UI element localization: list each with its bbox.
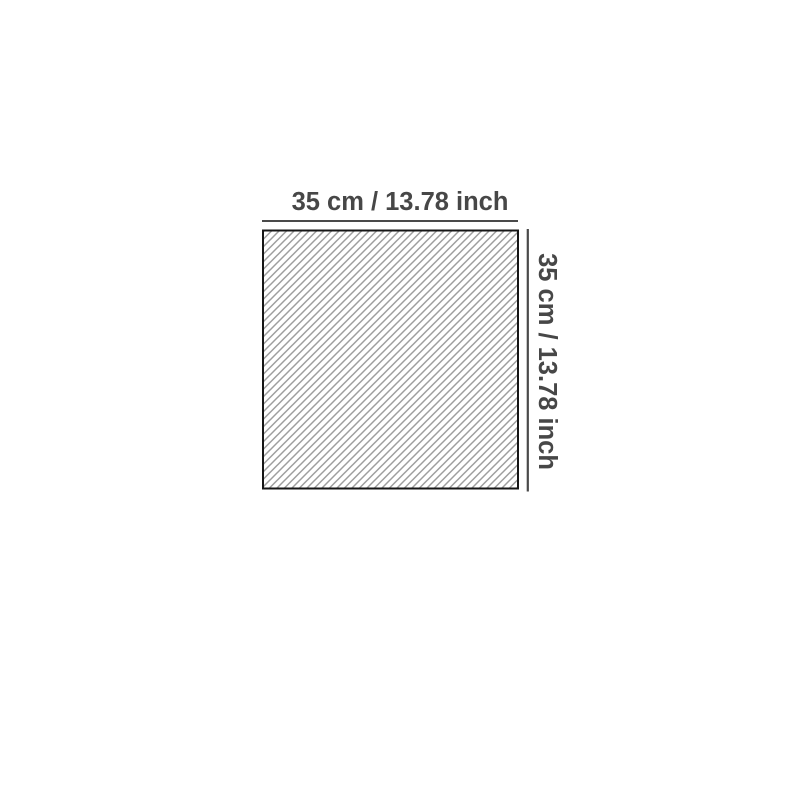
svg-text:35 cm / 13.78 inch: 35 cm / 13.78 inch	[533, 253, 561, 470]
svg-text:35 cm / 13.78 inch: 35 cm / 13.78 inch	[292, 188, 509, 216]
